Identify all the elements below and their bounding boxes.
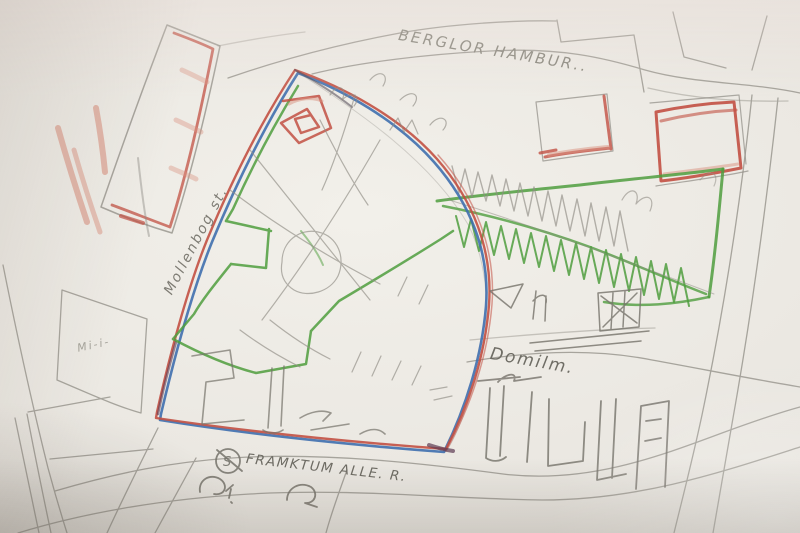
- bottom-right-buildings: [478, 375, 669, 489]
- pencil-map-drawing: S: [0, 0, 800, 533]
- station-symbol-letter: S: [223, 455, 231, 470]
- pencil-marks-below-band: [490, 284, 649, 351]
- building-red-accent: [536, 94, 613, 161]
- sketch-map-page: S BERGLOR HAMBUR.. Mollenbog st. Domilm.…: [0, 0, 800, 533]
- red-building-top-left: [101, 25, 220, 233]
- site-outline-blue: [160, 73, 487, 452]
- red-hatch-strokes: [58, 108, 149, 236]
- red-spiral-mark: [281, 96, 331, 143]
